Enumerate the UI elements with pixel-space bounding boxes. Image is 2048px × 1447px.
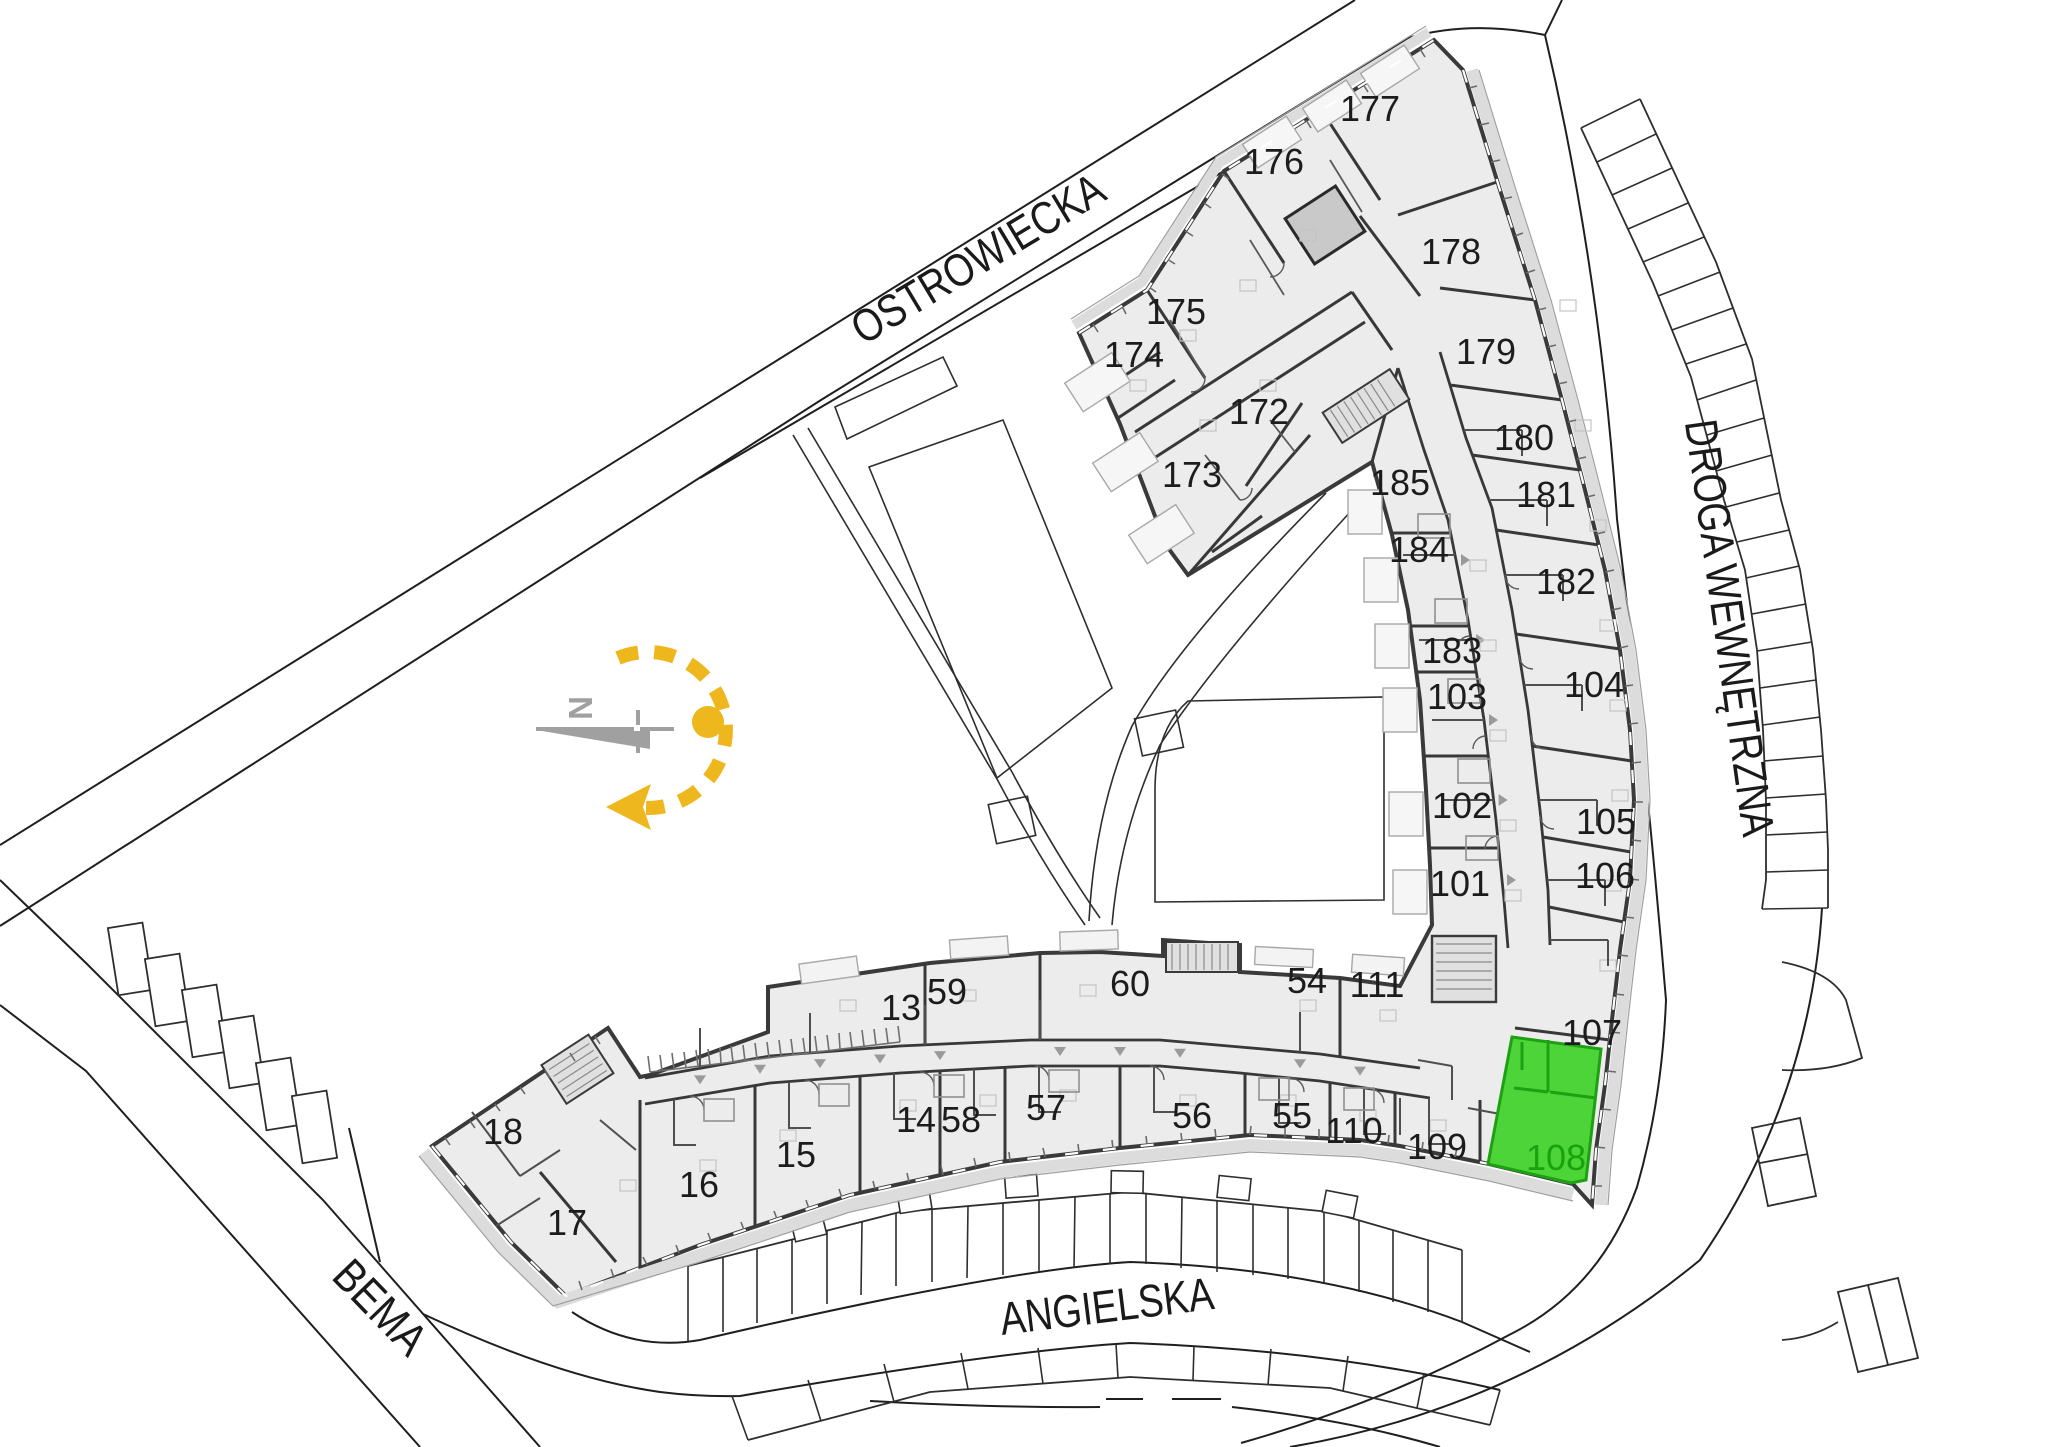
svg-text:54: 54 [1287,960,1327,1001]
svg-text:108: 108 [1526,1137,1586,1178]
svg-text:57: 57 [1026,1087,1066,1128]
svg-text:55: 55 [1272,1095,1312,1136]
svg-text:18: 18 [483,1111,523,1152]
svg-text:184: 184 [1389,529,1449,570]
svg-text:185: 185 [1370,462,1430,503]
svg-text:17: 17 [547,1202,587,1243]
svg-text:172: 172 [1229,391,1289,432]
svg-text:173: 173 [1162,454,1222,495]
svg-text:174: 174 [1104,334,1164,375]
svg-text:180: 180 [1494,417,1554,458]
svg-text:181: 181 [1516,474,1576,515]
svg-text:175: 175 [1146,291,1206,332]
svg-text:105: 105 [1576,801,1636,842]
svg-text:110: 110 [1325,1110,1382,1151]
svg-text:58: 58 [941,1099,981,1140]
svg-text:177: 177 [1340,88,1400,129]
svg-text:56: 56 [1172,1095,1212,1136]
svg-text:182: 182 [1536,561,1596,602]
svg-text:102: 102 [1432,785,1492,826]
svg-text:103: 103 [1427,676,1487,717]
svg-text:109: 109 [1407,1126,1467,1167]
svg-text:N: N [562,696,599,720]
svg-text:59: 59 [927,971,967,1012]
svg-text:101: 101 [1430,863,1490,904]
svg-text:14: 14 [896,1099,936,1140]
svg-text:183: 183 [1422,630,1482,671]
svg-text:104: 104 [1564,664,1624,705]
svg-text:15: 15 [776,1134,816,1175]
svg-text:178: 178 [1421,231,1481,272]
svg-text:106: 106 [1575,855,1635,896]
svg-text:60: 60 [1110,963,1150,1004]
svg-text:16: 16 [679,1164,719,1205]
svg-text:176: 176 [1244,141,1304,182]
svg-text:107: 107 [1562,1012,1622,1053]
svg-text:111: 111 [1350,964,1405,1005]
svg-text:13: 13 [881,987,921,1028]
svg-text:179: 179 [1456,331,1516,372]
